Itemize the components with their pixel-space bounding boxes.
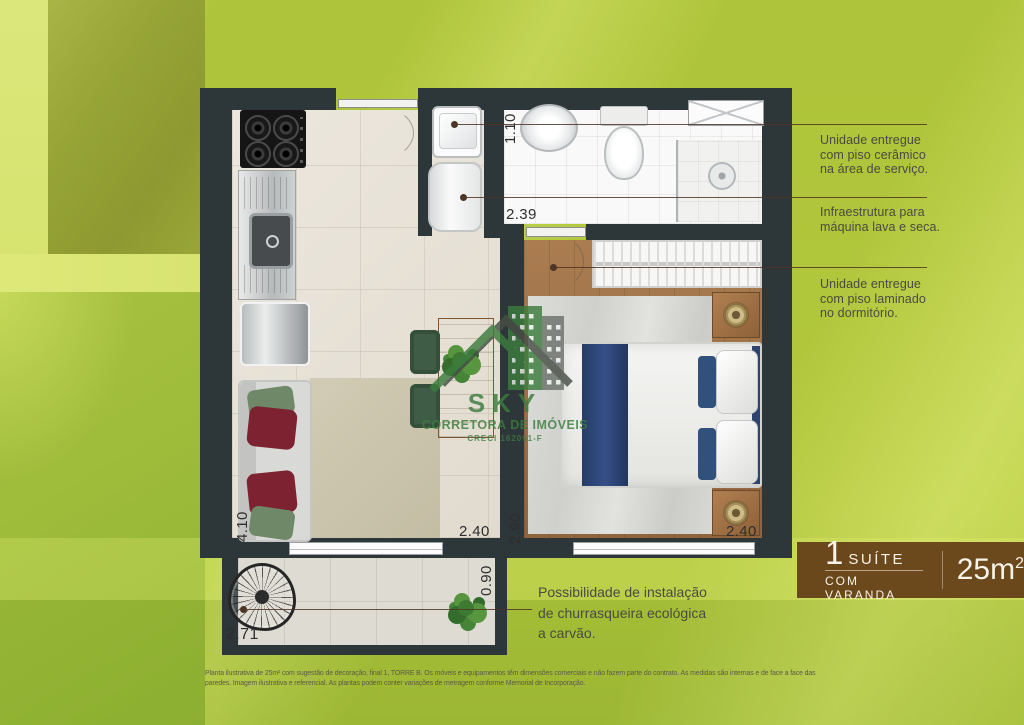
note-line: Unidade entregue (820, 277, 980, 292)
leader-line-washer (465, 197, 927, 198)
wardrobe (592, 240, 762, 288)
leader-line-ceramic-floor (456, 124, 927, 125)
logo-tagline: CORRETORA DE IMÓVEIS (405, 418, 605, 432)
stove-burner (273, 115, 299, 141)
badge-number: 1 (825, 539, 843, 567)
bed-accent-pillow (698, 356, 716, 408)
badge-title-row: 1 SUÍTE (825, 539, 928, 568)
logo-license: CRECI 162091-F (430, 434, 580, 443)
stove-burner (273, 141, 299, 167)
entrance-door-swing-arc (340, 106, 414, 160)
floor-plan-poster: 1.10 2.39 4.10 2.40 2.90 2.40 0.90 2.71 … (0, 0, 1024, 725)
dimension-bathroom-width: 1.10 (502, 100, 519, 144)
dimension-bedroom-length: 2.90 (507, 498, 524, 544)
dimension-living-width: 2.40 (459, 523, 490, 540)
background-light-bar (0, 254, 205, 292)
logo-buildings-icon (430, 292, 580, 392)
background-light-column (0, 0, 48, 292)
badge-area-value: 25m (957, 553, 1015, 586)
bathroom-sink (520, 104, 578, 152)
living-window-icon (289, 542, 443, 555)
note-line: de churrasqueira ecológica (538, 603, 723, 624)
note-grill: Possibilidade de instalação de churrasqu… (538, 582, 723, 644)
leader-line-laminate-floor (555, 267, 927, 268)
leader-line-grill (245, 609, 532, 610)
sofa-pillow-red (246, 406, 298, 451)
disclaimer-line-2: paredes. Imagem ilustrativa e referencia… (205, 679, 585, 689)
note-line: Infraestrutura para (820, 205, 980, 220)
wall-balcony-right (495, 558, 507, 648)
bed-pillow (716, 350, 758, 414)
bathroom-window-icon (688, 100, 764, 126)
refrigerator (240, 302, 310, 366)
badge-area-exponent: 2 (1015, 555, 1024, 572)
bed-accent-pillow (698, 428, 716, 480)
note-line: na área de serviço. (820, 162, 980, 177)
toilet-tank (600, 106, 648, 126)
laundry-tub-basin (439, 113, 477, 149)
badge-left-block: 1 SUÍTE COM VARANDA (825, 539, 928, 602)
watermark-logo: SKY CORRETORA DE IMÓVEIS CRECI 162091-F (430, 292, 580, 448)
note-line: Unidade entregue (820, 133, 980, 148)
balcony-plant-icon (458, 600, 474, 616)
note-ceramic-floor: Unidade entregue com piso cerâmico na ár… (820, 133, 980, 177)
disclaimer-line-1: Planta ilustrativa de 25m² com sugestão … (205, 669, 816, 679)
toilet-bowl (604, 126, 644, 180)
badge-subtitle: COM VARANDA (825, 574, 928, 602)
logo-brand: SKY (430, 388, 580, 419)
sofa-pillow-green (248, 505, 296, 541)
wall-bathroom-bedroom (586, 224, 792, 240)
note-line: máquina lava e seca. (820, 220, 980, 235)
shower-stall (676, 140, 762, 222)
note-line: no dormitório. (820, 306, 980, 321)
unit-badge: 1 SUÍTE COM VARANDA 25m2 (797, 542, 1024, 598)
dimension-bedroom-width: 2.40 (726, 523, 757, 540)
wall-laundry-right (484, 108, 504, 238)
shower-head-icon (708, 162, 736, 190)
bed-runner (582, 344, 628, 486)
wall-balcony-bottom (222, 645, 507, 655)
note-laminate-floor: Unidade entregue com piso laminado no do… (820, 277, 980, 321)
dimension-balcony-depth: 0.90 (478, 556, 495, 596)
wall-right (762, 88, 792, 558)
stove-burner (245, 141, 271, 167)
note-washer-infrastructure: Infraestrutura para máquina lava e seca. (820, 205, 980, 234)
note-line: com piso cerâmico (820, 148, 980, 163)
counter-drainboard (244, 265, 290, 293)
wall-left (200, 88, 232, 558)
bed-pillow (716, 420, 758, 484)
wire-chair-grill-icon (228, 563, 296, 631)
kitchen-sink (249, 213, 293, 269)
note-line: a carvão. (538, 623, 723, 644)
sink-drain (266, 235, 279, 248)
note-line: com piso laminado (820, 292, 980, 307)
dimension-balcony-width: 2.71 (226, 626, 259, 644)
stove (240, 110, 306, 168)
dimension-bathroom-length: 2.39 (506, 206, 537, 223)
note-line: Possibilidade de instalação (538, 582, 723, 603)
laundry-tub (432, 106, 482, 158)
background-bottom-strip (0, 600, 1024, 725)
bedroom-window-icon (573, 542, 755, 555)
lamp-icon (722, 301, 750, 329)
dimension-living-length: 4.10 (234, 496, 251, 542)
badge-area: 25m2 (957, 553, 1024, 587)
double-bed (560, 342, 762, 488)
bedroom-door-swing-arc (528, 235, 584, 289)
kitchen-counter (238, 170, 296, 300)
stove-burner (245, 115, 271, 141)
background-shade-top-left (48, 0, 205, 254)
badge-divider-vertical (942, 551, 943, 589)
stove-knobs (300, 117, 303, 163)
counter-drainboard (244, 177, 290, 209)
badge-type: SUÍTE (848, 551, 905, 568)
